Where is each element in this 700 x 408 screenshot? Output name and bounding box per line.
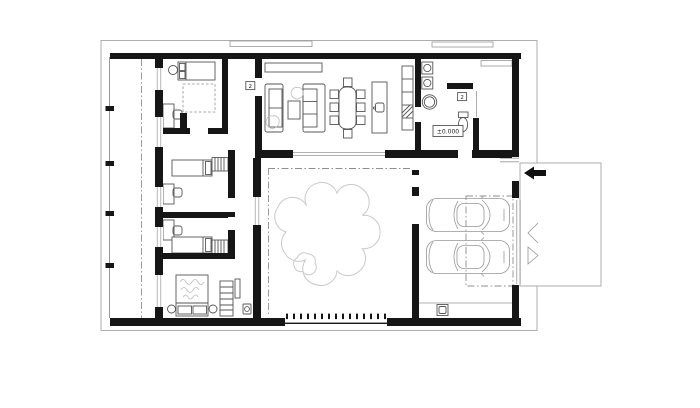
fence-slat xyxy=(356,314,358,320)
tree xyxy=(275,182,380,285)
fence-slat xyxy=(286,314,288,320)
wall-east xyxy=(512,181,519,198)
chair xyxy=(357,116,366,125)
fence-slat xyxy=(349,314,351,320)
chair xyxy=(344,78,353,87)
fence-slat xyxy=(384,314,386,320)
chair xyxy=(330,103,339,112)
window xyxy=(253,197,261,225)
door-tag-text: 2 xyxy=(460,95,464,101)
fence-slat xyxy=(342,314,344,320)
window xyxy=(155,227,163,247)
chair xyxy=(330,116,339,125)
wall-east xyxy=(512,285,519,326)
toilet xyxy=(243,304,251,314)
fence-slat xyxy=(293,314,295,320)
wardrobe xyxy=(212,158,228,172)
wall-interior xyxy=(222,53,228,134)
shower-screen xyxy=(235,279,240,298)
wall-courtyard-west xyxy=(253,158,261,318)
chair xyxy=(357,90,366,99)
room-bedroom-top-left xyxy=(163,62,215,128)
window xyxy=(155,187,163,207)
wall-stub xyxy=(180,113,187,128)
room-bedroom-b xyxy=(163,220,228,254)
wall-living-west xyxy=(255,59,262,78)
wall-east xyxy=(512,59,519,157)
sliding-glass-wall xyxy=(293,150,385,158)
car xyxy=(427,196,510,235)
chair xyxy=(330,90,339,99)
room-bedroom-a xyxy=(163,158,228,205)
wall-north xyxy=(110,53,521,59)
wall-stub xyxy=(412,170,419,175)
laundry-basin xyxy=(422,95,436,109)
dryer xyxy=(422,77,433,89)
fence-slats xyxy=(285,314,387,326)
carport-roof-outline xyxy=(466,196,513,286)
coffee-table xyxy=(288,101,300,119)
wall-interior xyxy=(208,128,228,134)
desk xyxy=(163,104,174,128)
window xyxy=(155,117,163,147)
desk xyxy=(163,184,174,204)
wall-living-east xyxy=(415,53,421,107)
carport xyxy=(419,196,512,316)
fence-slat xyxy=(377,314,379,320)
stool xyxy=(209,305,217,313)
floor-plan-drawing: ±0.000 2 2 xyxy=(0,0,700,408)
dining-table xyxy=(339,87,356,129)
double-bed xyxy=(178,62,215,80)
planter xyxy=(437,305,448,316)
shrub xyxy=(294,253,317,275)
window xyxy=(155,275,163,307)
car xyxy=(427,238,510,277)
wall-bedroom-divider xyxy=(155,253,235,259)
room-living-dining-kitchen xyxy=(265,63,413,138)
floor-plan-canvas: ±0.000 2 2 xyxy=(0,0,700,408)
fence-slat xyxy=(328,314,330,320)
door-tag: 2 xyxy=(458,93,467,101)
level-annotation-text: ±0.000 xyxy=(437,129,459,136)
washing-machine xyxy=(422,62,433,74)
door-tag: 2 xyxy=(246,82,255,90)
kitchen-cabinets xyxy=(402,66,413,130)
fence-slat xyxy=(363,314,365,320)
fence-slat xyxy=(370,314,372,320)
sideboard xyxy=(265,63,322,72)
level-annotation: ±0.000 xyxy=(433,126,463,137)
room-master-bedroom xyxy=(168,275,252,316)
rug xyxy=(183,84,215,112)
wall-bedroom-divider xyxy=(155,212,235,218)
single-bed xyxy=(172,237,212,253)
driveway-area xyxy=(520,163,601,286)
fence-slat xyxy=(321,314,323,320)
sofa xyxy=(303,84,325,132)
wall-living-west xyxy=(255,96,262,150)
courtyard xyxy=(275,182,380,285)
canopy-edge-right xyxy=(432,42,493,47)
door-tag-text: 2 xyxy=(249,84,253,90)
plant xyxy=(291,87,303,99)
fence-slat xyxy=(300,314,302,320)
entry-shelf xyxy=(481,61,512,67)
kitchen-island xyxy=(372,82,387,133)
wall-wc xyxy=(447,83,473,89)
fence-slat xyxy=(335,314,337,320)
shelving-unit xyxy=(220,281,233,316)
chair xyxy=(344,130,353,139)
wall-living-east xyxy=(415,122,421,150)
window xyxy=(155,68,163,90)
canopy-edge-left xyxy=(230,41,312,47)
nightstand xyxy=(169,66,178,75)
double-bed xyxy=(176,275,208,316)
chair xyxy=(357,103,366,112)
stool xyxy=(168,305,176,313)
sofa xyxy=(265,84,283,132)
fence-slat xyxy=(307,314,309,320)
single-bed xyxy=(172,160,212,176)
wardrobe xyxy=(212,240,228,254)
dining-set xyxy=(330,78,365,138)
fence-slat xyxy=(314,314,316,320)
wall-wc xyxy=(473,118,479,158)
driveway xyxy=(500,158,601,286)
